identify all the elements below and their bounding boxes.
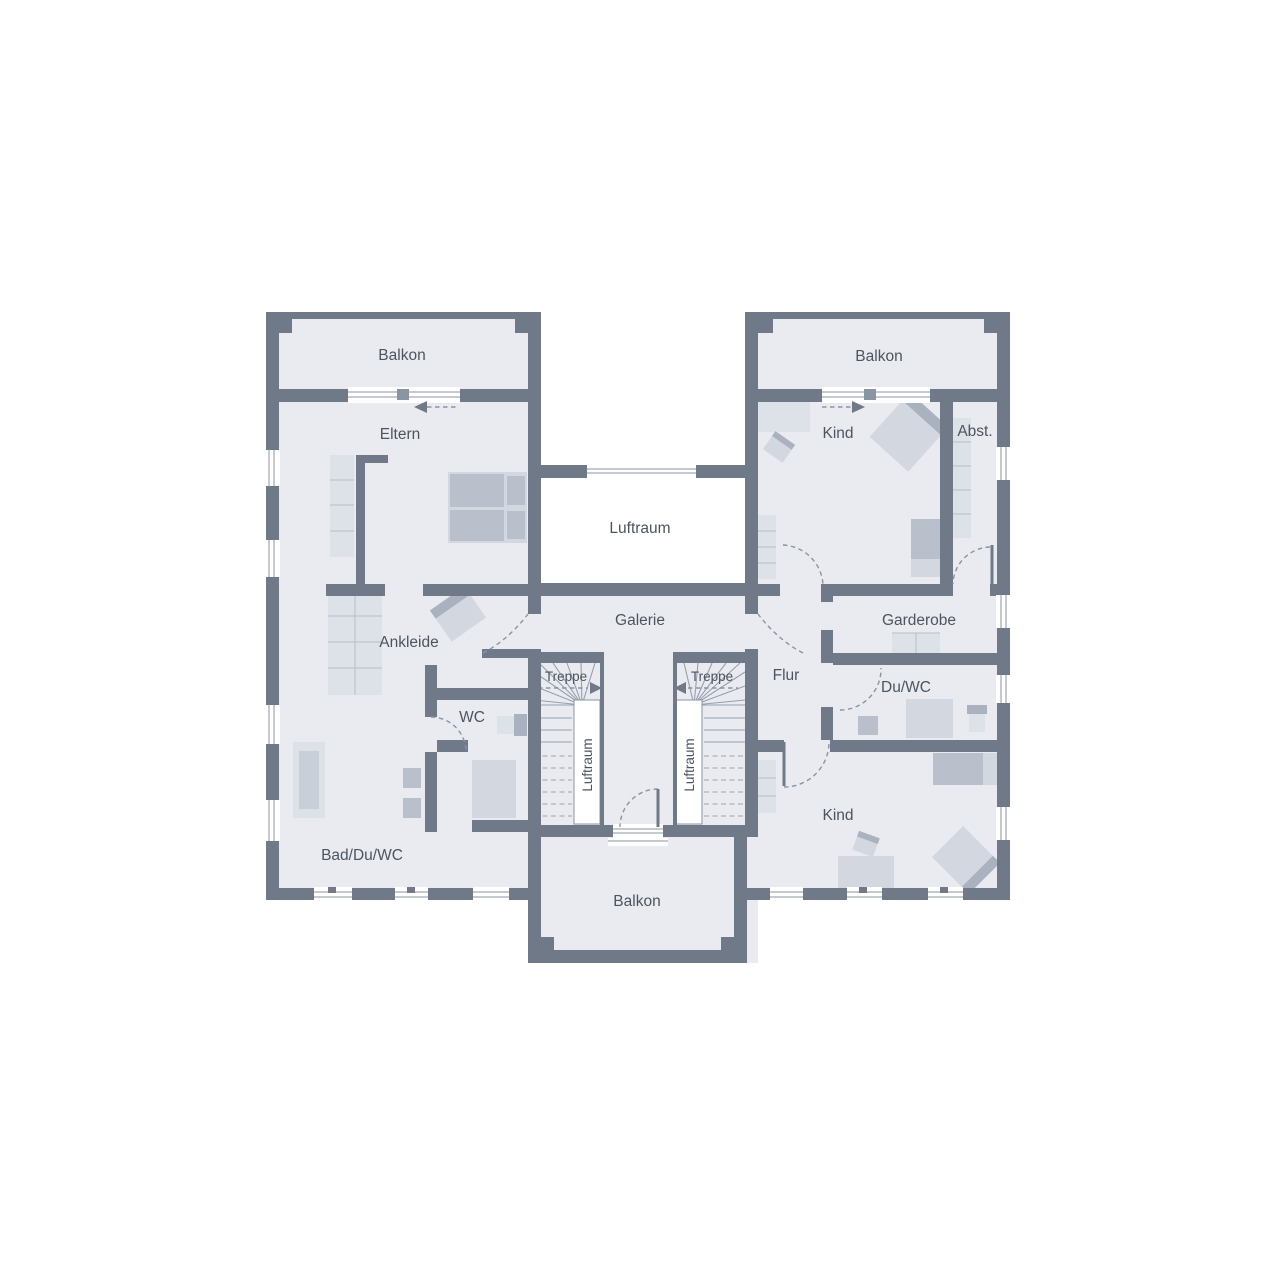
room-label-kind-top: Kind (822, 425, 853, 442)
room-label-kind-bottom: Kind (822, 807, 853, 824)
toilet-duwc (967, 705, 987, 732)
closet-ankleide (328, 590, 382, 695)
stair-label-treppe-right: Treppe (691, 669, 733, 684)
window (314, 887, 509, 901)
sink-left-1 (403, 768, 421, 788)
closet-kind-bottom (757, 760, 776, 813)
sink-duwc (858, 716, 878, 735)
shower-bad (472, 760, 516, 818)
room-label-wc: WC (459, 709, 485, 726)
room-label-eltern: Eltern (380, 426, 421, 443)
sink-left-2 (403, 798, 421, 818)
window (770, 887, 963, 901)
room-label-balkon-top-left: Balkon (378, 347, 425, 364)
room-label-galerie: Galerie (615, 612, 665, 629)
window-luftraum (587, 464, 696, 479)
bed-kind-bottom-wall (933, 753, 997, 785)
sliding-door-right (822, 387, 930, 403)
stair-label-luftraum-left: Luftraum (580, 738, 595, 791)
shower-duwc (906, 699, 953, 738)
room-label-balkon-bottom: Balkon (613, 893, 660, 910)
room-label-balkon-top-right: Balkon (855, 348, 902, 365)
closet-kind-top (757, 402, 810, 432)
sliding-door-left (348, 387, 460, 403)
desk-kind-bottom (838, 856, 894, 888)
room-label-ankleide: Ankleide (379, 634, 438, 651)
balcony-door-bottom (608, 824, 668, 846)
room-label-luftraum: Luftraum (609, 520, 670, 537)
stair-label-treppe-left: Treppe (545, 669, 587, 684)
room-label-bad-du-wc: Bad/Du/WC (321, 847, 403, 864)
bed-eltern (448, 472, 527, 543)
room-label-garderobe: Garderobe (882, 612, 956, 629)
toilet-wc (497, 714, 527, 736)
bathtub (293, 742, 325, 818)
room-label-du-wc: Du/WC (881, 679, 931, 696)
floor-plan-page: Balkon Balkon Balkon Eltern Kind Abst. L… (0, 0, 1280, 1280)
stair-label-luftraum-right: Luftraum (682, 738, 697, 791)
wardrobe-eltern (330, 455, 354, 557)
room-label-abstellraum: Abst. (957, 423, 992, 440)
dresser-kind-top (911, 519, 941, 577)
room-label-flur: Flur (773, 667, 800, 684)
floor-plan-svg: Balkon Balkon Balkon Eltern Kind Abst. L… (0, 0, 1280, 1280)
wardrobe-garderobe (892, 633, 940, 654)
